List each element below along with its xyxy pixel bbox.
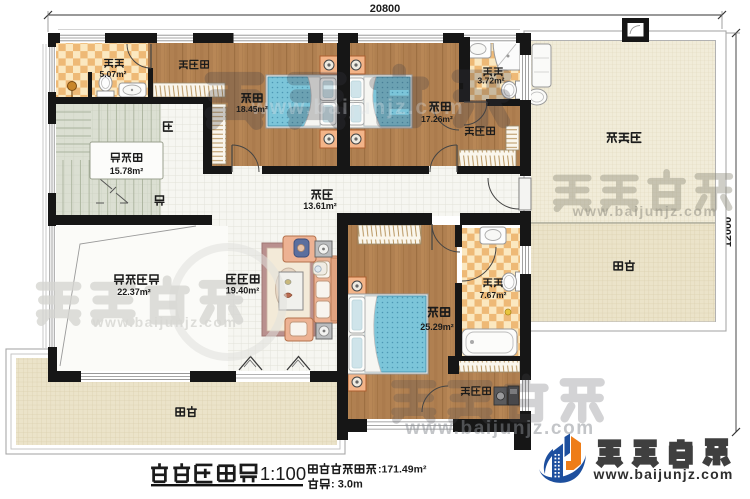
svg-text:www.baijunjz.com: www.baijunjz.com <box>92 314 238 330</box>
svg-text:1:100: 1:100 <box>260 463 306 484</box>
svg-text:25.29m²: 25.29m² <box>420 322 454 332</box>
svg-text::171.49m²: :171.49m² <box>378 464 427 476</box>
svg-text:www.baijunjz.com: www.baijunjz.com <box>404 418 595 439</box>
svg-text:15.78m²: 15.78m² <box>110 166 144 176</box>
svg-text:5.07m²: 5.07m² <box>100 69 127 79</box>
svg-text:20800: 20800 <box>370 3 401 15</box>
svg-text:7.67m²: 7.67m² <box>480 290 507 300</box>
svg-text:www.baijunjz.com: www.baijunjz.com <box>592 466 733 482</box>
svg-text:www.baijunjz.com: www.baijunjz.com <box>572 203 718 219</box>
svg-text:13.61m²: 13.61m² <box>303 201 337 211</box>
svg-text:17.26m²: 17.26m² <box>421 114 453 124</box>
svg-text:22.37m²: 22.37m² <box>117 287 151 297</box>
svg-text:: 3.0m: : 3.0m <box>331 479 363 491</box>
svg-text:18.45m²: 18.45m² <box>236 104 268 114</box>
svg-text:3.72m²: 3.72m² <box>478 76 505 86</box>
svg-text:19.40m²: 19.40m² <box>226 286 260 296</box>
